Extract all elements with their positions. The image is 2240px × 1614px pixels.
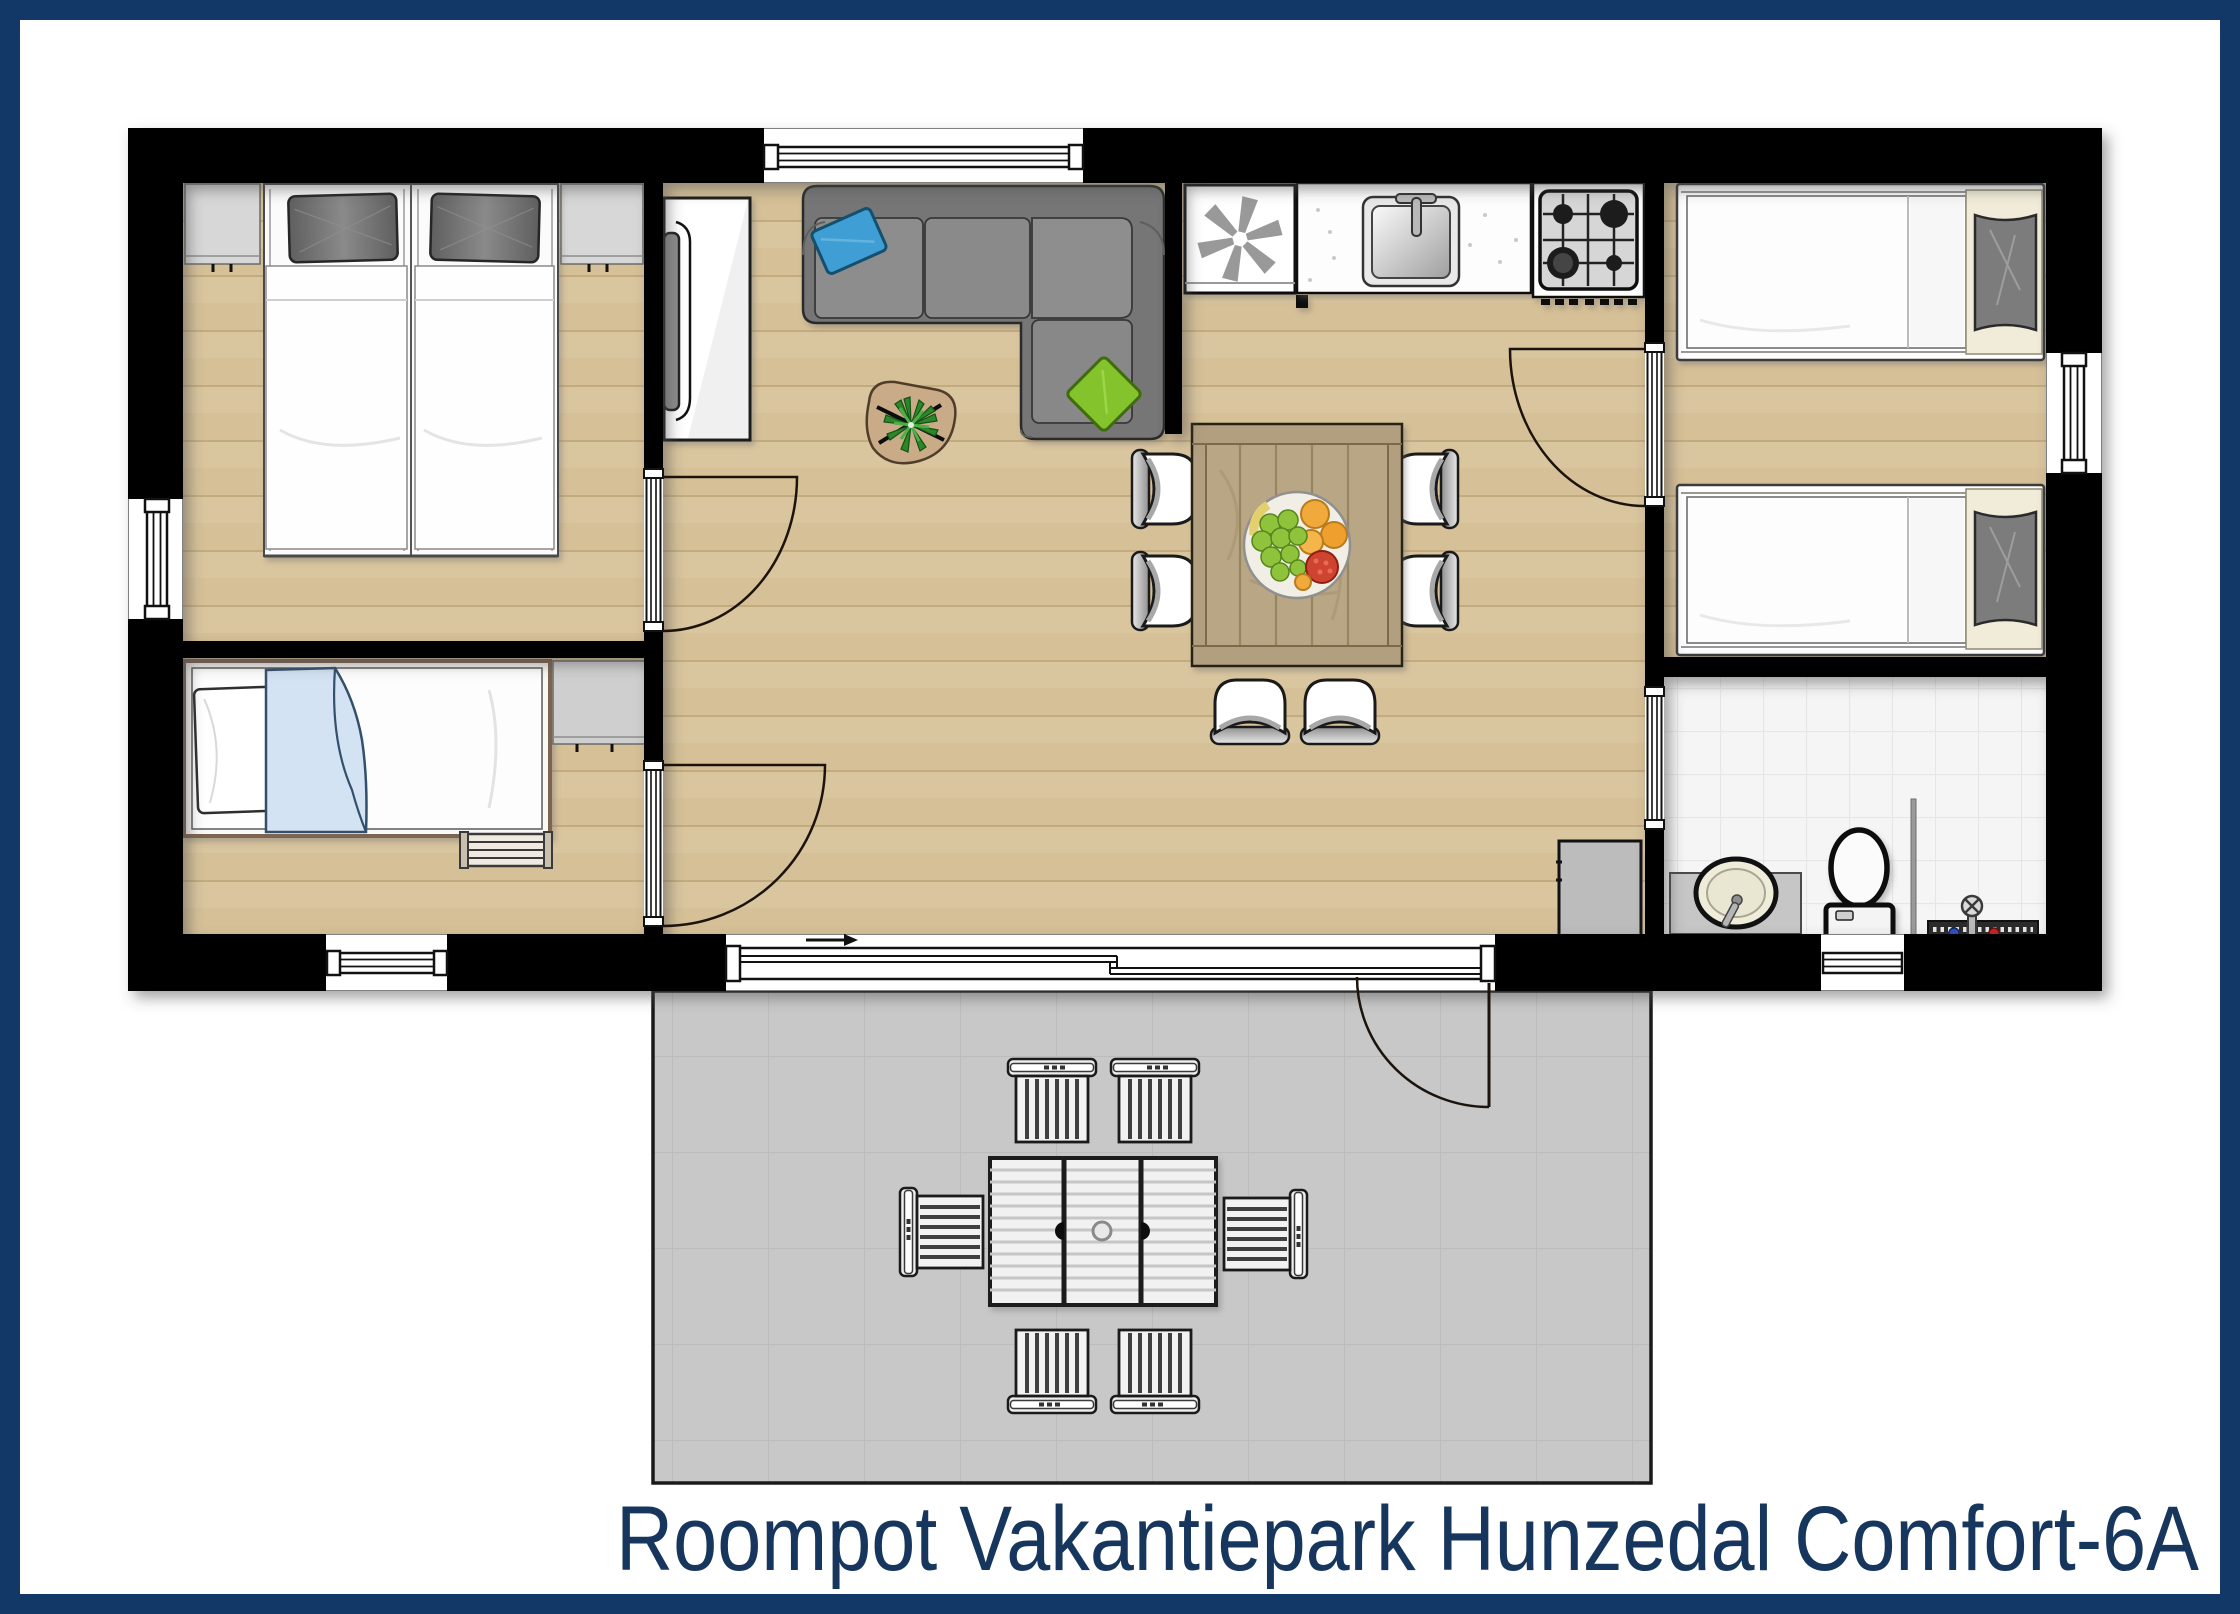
svg-text:Roompot Vakantiepark Hunzedal: Roompot Vakantiepark Hunzedal Comfort-6A — [616, 1488, 2200, 1590]
